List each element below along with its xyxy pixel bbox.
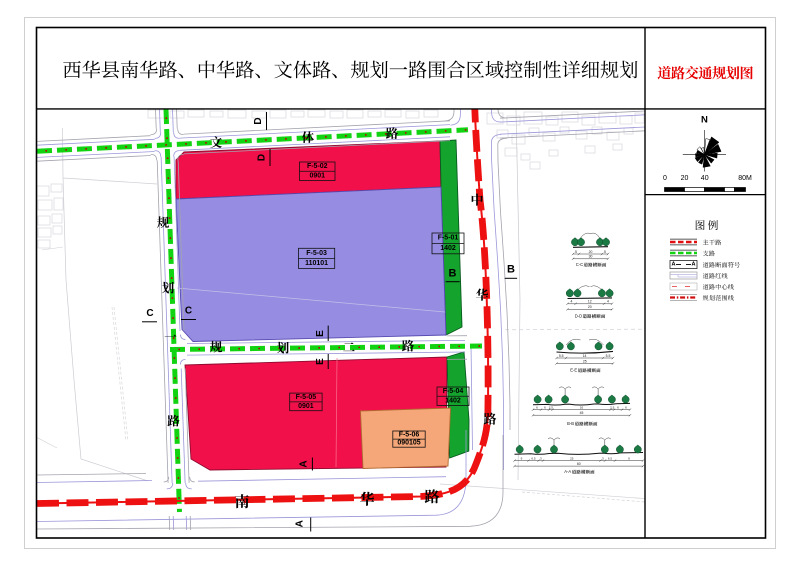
svg-text:E: E xyxy=(315,330,326,337)
svg-text:60: 60 xyxy=(577,462,581,466)
svg-text:80M: 80M xyxy=(738,175,752,182)
svg-text:5.5: 5.5 xyxy=(559,354,564,358)
svg-text:2.5: 2.5 xyxy=(610,406,615,410)
svg-text:D: D xyxy=(253,117,264,124)
svg-text:F-5-02: F-5-02 xyxy=(307,163,328,170)
svg-text:0901: 0901 xyxy=(309,172,325,179)
svg-text:25: 25 xyxy=(570,456,574,460)
svg-text:1402: 1402 xyxy=(445,397,461,404)
svg-text:20: 20 xyxy=(588,305,592,309)
svg-text:4: 4 xyxy=(607,300,609,304)
svg-text:E-E: E-E xyxy=(570,368,577,373)
svg-text:45: 45 xyxy=(580,411,584,415)
svg-text:D: D xyxy=(257,154,268,161)
svg-text:16: 16 xyxy=(580,406,584,410)
svg-text:C: C xyxy=(146,308,153,319)
svg-text:2.5: 2.5 xyxy=(549,406,554,410)
svg-text:F-5-05: F-5-05 xyxy=(296,394,317,401)
svg-text:E: E xyxy=(315,358,326,365)
svg-text:F-5-04: F-5-04 xyxy=(443,388,464,395)
svg-text:C-C: C-C xyxy=(576,262,583,267)
svg-text:D-D: D-D xyxy=(575,313,582,318)
svg-text:12: 12 xyxy=(588,300,592,304)
svg-text:30: 30 xyxy=(589,255,593,259)
svg-text:0: 0 xyxy=(663,175,667,182)
svg-text:14: 14 xyxy=(583,354,587,358)
svg-text:F-5-01: F-5-01 xyxy=(438,235,459,242)
svg-text:6.5: 6.5 xyxy=(531,456,536,460)
svg-text:110101: 110101 xyxy=(305,260,328,267)
svg-text:A: A xyxy=(672,262,676,268)
svg-text:A: A xyxy=(295,520,306,527)
svg-text:25: 25 xyxy=(583,359,587,363)
svg-text:N: N xyxy=(701,115,708,126)
svg-text:5: 5 xyxy=(604,250,606,254)
svg-text:090105: 090105 xyxy=(397,440,420,447)
svg-text:6.5: 6.5 xyxy=(608,456,613,460)
svg-text:B: B xyxy=(507,264,515,276)
svg-text:C: C xyxy=(185,306,192,317)
svg-text:20: 20 xyxy=(681,175,689,182)
svg-text:1402: 1402 xyxy=(440,245,456,252)
svg-text:5.5: 5.5 xyxy=(606,354,611,358)
svg-text:20: 20 xyxy=(589,250,593,254)
svg-text:0901: 0901 xyxy=(298,403,314,410)
svg-text:A: A xyxy=(692,262,696,268)
svg-text:F-5-03: F-5-03 xyxy=(306,250,327,257)
svg-text:F-5-06: F-5-06 xyxy=(399,432,420,439)
svg-text:4: 4 xyxy=(571,300,573,304)
svg-text:5: 5 xyxy=(575,250,577,254)
svg-text:40: 40 xyxy=(701,175,709,182)
svg-text:A-A: A-A xyxy=(564,469,571,474)
svg-text:B-B: B-B xyxy=(567,421,574,426)
svg-text:B: B xyxy=(449,268,457,280)
svg-text:A: A xyxy=(299,460,310,467)
